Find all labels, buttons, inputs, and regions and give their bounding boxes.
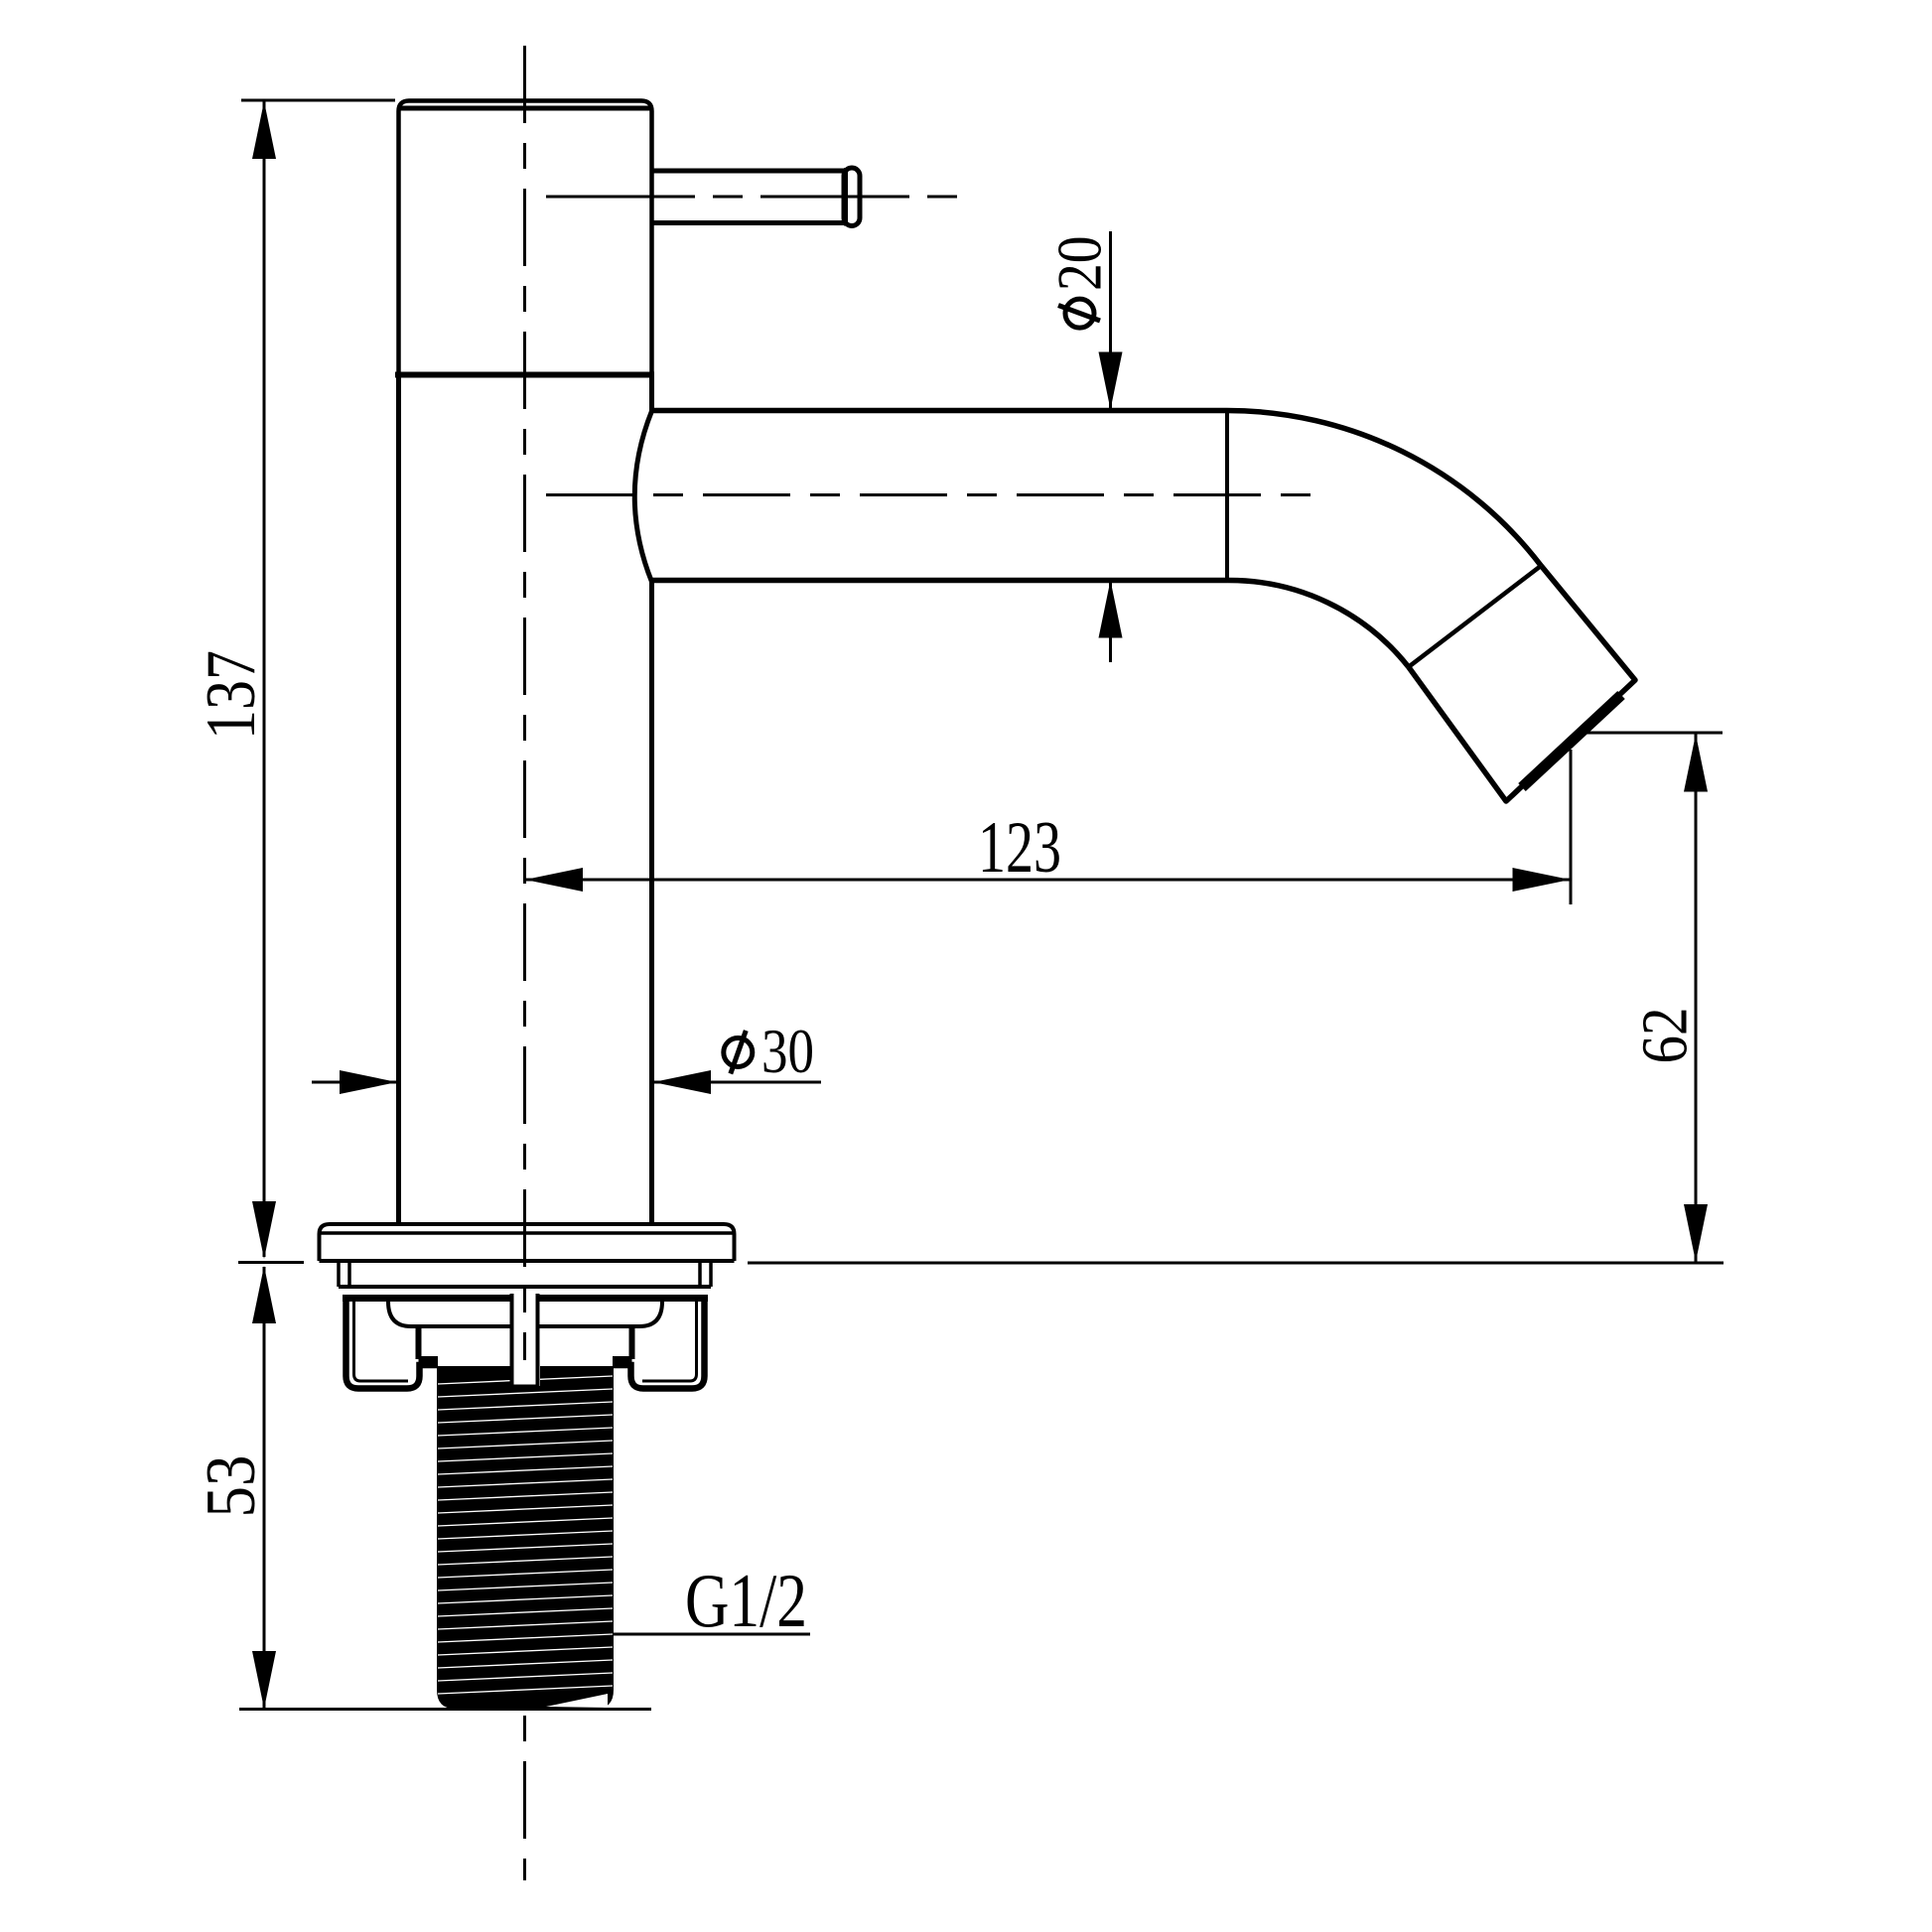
svg-text:G1/2: G1/2	[685, 1558, 807, 1643]
svg-text:20: 20	[1044, 236, 1115, 292]
svg-text:62: 62	[1629, 1008, 1702, 1064]
svg-text:123: 123	[978, 807, 1061, 889]
svg-text:53: 53	[193, 1455, 270, 1518]
svg-text:137: 137	[193, 650, 270, 740]
svg-text:30: 30	[761, 1016, 814, 1086]
